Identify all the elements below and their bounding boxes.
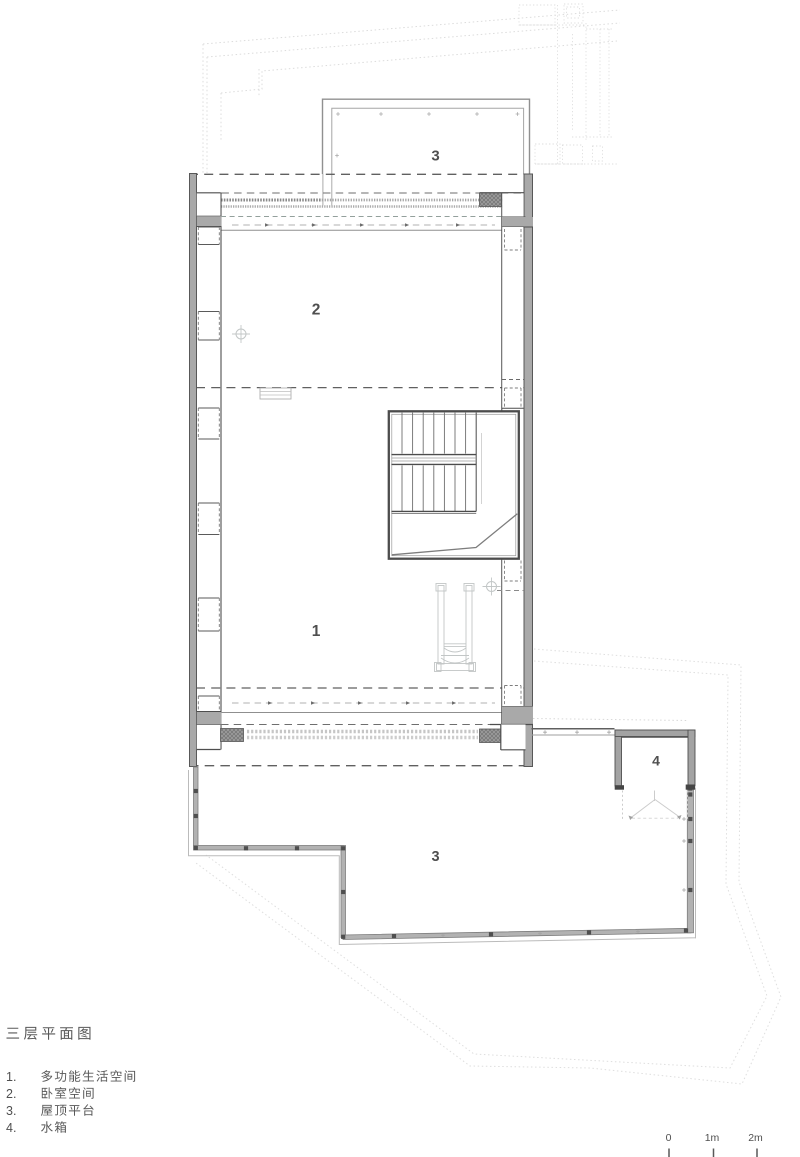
svg-text:3.: 3. bbox=[6, 1104, 16, 1118]
svg-text:2: 2 bbox=[312, 302, 321, 319]
svg-text:4: 4 bbox=[652, 753, 660, 769]
svg-text:1m: 1m bbox=[705, 1132, 720, 1144]
svg-text:1: 1 bbox=[312, 623, 321, 640]
svg-text:4.: 4. bbox=[6, 1121, 16, 1135]
svg-text:2.: 2. bbox=[6, 1087, 16, 1101]
svg-text:1.: 1. bbox=[6, 1070, 16, 1084]
svg-text:3: 3 bbox=[431, 148, 439, 165]
svg-text:0: 0 bbox=[666, 1132, 672, 1144]
svg-text:2m: 2m bbox=[748, 1132, 763, 1144]
svg-text:3: 3 bbox=[431, 849, 439, 865]
